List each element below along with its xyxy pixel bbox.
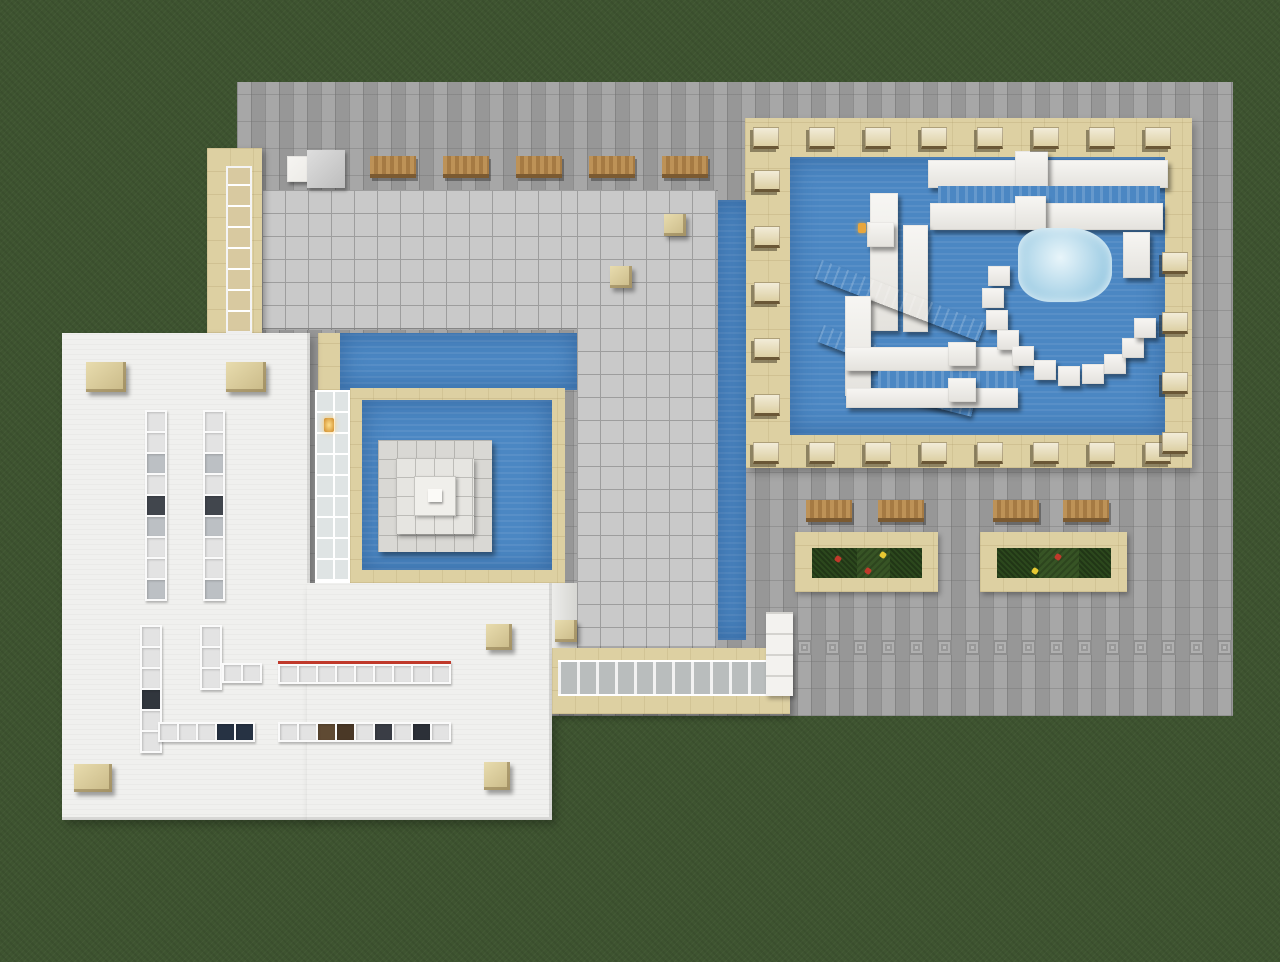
fountain-cap <box>428 489 442 502</box>
lounge-chair <box>1162 372 1188 394</box>
slide-l-bar-upper <box>845 347 1019 371</box>
slide-right-bar <box>1123 232 1150 278</box>
garden-bench-pair <box>993 500 1109 522</box>
skylight-strip <box>145 410 167 601</box>
wooden-bench <box>662 156 708 178</box>
lounge-chair <box>754 338 780 360</box>
skylight-strip <box>203 410 225 601</box>
skylight-pane <box>413 724 430 740</box>
lounge-chair <box>1033 442 1059 464</box>
roof-corner-block <box>484 762 510 790</box>
lounge-chair <box>753 127 779 149</box>
game-viewport[interactable] <box>0 0 1280 962</box>
skylight-pane <box>147 454 165 473</box>
skylight-pane <box>147 412 165 431</box>
lounge-chair <box>1033 127 1059 149</box>
skylight-pane <box>142 648 160 667</box>
hook-block <box>1134 318 1156 338</box>
slab-platform <box>307 150 345 188</box>
hedge <box>812 548 857 578</box>
roof-chimney-block <box>610 266 632 288</box>
slide-box <box>948 342 976 366</box>
chiseled-tile <box>937 640 952 655</box>
deck-loungers-right <box>1162 252 1188 454</box>
slide-box <box>948 378 976 402</box>
skylight-pane <box>205 412 223 431</box>
skylight-pane <box>179 724 196 740</box>
slide-box <box>1015 196 1046 230</box>
lantern-glow <box>324 418 334 432</box>
lounge-chair <box>754 170 780 192</box>
lounge-chair <box>977 127 1003 149</box>
fountain-tier-1 <box>378 440 492 552</box>
skylight-pane <box>318 666 335 682</box>
lounge-chair <box>1162 252 1188 274</box>
north-water-channel <box>340 333 577 390</box>
hook-block <box>1122 338 1144 358</box>
skylight-pane <box>205 433 223 452</box>
skylight-pane <box>375 666 392 682</box>
wooden-bench <box>370 156 416 178</box>
slide-l-vertical <box>845 296 871 396</box>
deck-loungers-left <box>754 170 780 416</box>
slide-box <box>867 222 894 247</box>
skylight-pane <box>356 724 373 740</box>
skylight-strip <box>200 625 222 690</box>
ice-patch <box>1018 228 1112 302</box>
skylight-pane <box>147 496 165 515</box>
skylight-pane <box>160 724 177 740</box>
skylight-pane <box>432 666 449 682</box>
wooden-bench <box>1063 500 1109 522</box>
lounge-chair <box>809 127 835 149</box>
quartz-entrance-strip <box>766 612 793 696</box>
skylight-pane <box>147 559 165 578</box>
white-building-roof-west <box>62 333 310 820</box>
wooden-bench <box>878 500 924 522</box>
roof-chimney-block <box>664 214 686 236</box>
bed-grass <box>1039 548 1079 578</box>
lounge-chair <box>865 127 891 149</box>
skylight-pane <box>205 454 223 473</box>
chiseled-tile <box>1105 640 1120 655</box>
slide-tower-left <box>870 193 898 331</box>
hedge <box>1079 548 1111 578</box>
roof-corner-block <box>226 362 266 392</box>
chiseled-tile <box>853 640 868 655</box>
lounge-chair <box>753 442 779 464</box>
skylight-strip <box>278 722 451 742</box>
hook-block <box>986 310 1008 330</box>
skylight-pane <box>205 538 223 557</box>
wooden-bench <box>589 156 635 178</box>
skylight-pane <box>205 559 223 578</box>
white-building-roof-south <box>307 583 552 820</box>
chiseled-tile <box>797 640 812 655</box>
chiseled-tile <box>909 640 924 655</box>
lounge-chair <box>977 442 1003 464</box>
skylight-pane <box>147 580 165 599</box>
slide-box <box>1015 151 1048 188</box>
courtyard-pool <box>362 400 552 570</box>
lounge-chair <box>1162 432 1188 454</box>
planter-bed <box>980 532 1127 592</box>
chiseled-tile <box>993 640 1008 655</box>
chiseled-tile <box>1021 640 1036 655</box>
chiseled-tile <box>1049 640 1064 655</box>
wooden-bench <box>993 500 1039 522</box>
skylight-pane <box>413 666 430 682</box>
hedge <box>890 548 922 578</box>
skylight-strip <box>158 722 255 742</box>
skylight-pane <box>202 648 220 667</box>
hook-block <box>1034 360 1056 380</box>
chiseled-tile <box>825 640 840 655</box>
skylight-pane <box>147 475 165 494</box>
garden-bench-pair <box>806 500 924 522</box>
atrium-window-band <box>558 660 786 696</box>
fountain-tier-3 <box>414 476 456 516</box>
skylight-pane <box>205 496 223 515</box>
chiseled-tile <box>1161 640 1176 655</box>
skylight-pane <box>375 724 392 740</box>
roof-corner-block <box>486 624 512 650</box>
lounge-chair <box>865 442 891 464</box>
skylight-pane <box>394 666 411 682</box>
hook-block <box>1012 346 1034 366</box>
gold-decoration <box>858 223 866 233</box>
lounge-chair <box>754 282 780 304</box>
west-skylight-strip <box>226 166 252 333</box>
skylight-pane <box>217 724 234 740</box>
skylight-pane <box>337 724 354 740</box>
pool-deck <box>745 118 1192 468</box>
skylight-strip-redline <box>278 661 451 684</box>
skylight-pane <box>299 666 316 682</box>
chiseled-tile <box>881 640 896 655</box>
wooden-bench <box>516 156 562 178</box>
lounge-chair <box>754 394 780 416</box>
skylight-pane <box>147 433 165 452</box>
wall-block <box>555 620 577 642</box>
roof-corner-block <box>74 764 112 792</box>
planter-bed <box>795 532 938 592</box>
hall-roof-vertical <box>577 190 718 648</box>
stair-ramp-upper <box>815 260 986 341</box>
skylight-pane <box>243 665 260 681</box>
east-water-channel <box>718 200 746 640</box>
chiseled-tile <box>1217 640 1232 655</box>
skylight-pane <box>299 724 316 740</box>
deck-loungers-bottom <box>753 442 1171 464</box>
lounge-chair <box>809 442 835 464</box>
wooden-bench <box>443 156 489 178</box>
skylight-pane <box>205 517 223 536</box>
lounge-chair <box>1089 442 1115 464</box>
main-pool <box>790 157 1165 435</box>
hook-block <box>988 266 1010 286</box>
hook-block <box>1058 366 1080 386</box>
skylight-pane <box>147 517 165 536</box>
skylight-strip <box>222 663 262 683</box>
fountain-tier-2 <box>396 458 474 534</box>
skylight-pane <box>142 669 160 688</box>
hook-block <box>1082 364 1104 384</box>
chiseled-tile <box>1189 640 1204 655</box>
skylight-pane <box>356 666 373 682</box>
skylight-pane <box>205 580 223 599</box>
plaza-bench-row <box>370 156 708 178</box>
roof-corner-block <box>86 362 126 392</box>
skylight-pane <box>280 724 297 740</box>
lounge-chair <box>921 442 947 464</box>
skylight-pane <box>318 724 335 740</box>
skylight-pane <box>205 475 223 494</box>
skylight-pane <box>337 666 354 682</box>
skylight-pane <box>394 724 411 740</box>
chiseled-tile <box>965 640 980 655</box>
hook-block <box>982 288 1004 308</box>
skylight-pane <box>142 627 160 646</box>
skylight-pane <box>198 724 215 740</box>
plaza-motif-row <box>797 640 1232 655</box>
deck-loungers-top <box>753 127 1171 149</box>
slide-bar-second <box>930 203 1163 230</box>
lounge-chair <box>1162 312 1188 334</box>
skylight-pane <box>202 669 220 688</box>
lounge-chair <box>1089 127 1115 149</box>
skylight-pane <box>432 724 449 740</box>
skylight-pane <box>224 665 241 681</box>
lounge-chair <box>921 127 947 149</box>
lounge-chair <box>1145 127 1171 149</box>
skylight-pane <box>236 724 253 740</box>
slide-bar-top <box>928 160 1168 188</box>
slide-l-bar-lower <box>846 388 1018 408</box>
wooden-bench <box>806 500 852 522</box>
slide-channel <box>938 186 1160 203</box>
chiseled-tile <box>1133 640 1148 655</box>
skylight-pane <box>142 690 160 709</box>
skylight-pane <box>202 627 220 646</box>
skylight-pane <box>280 666 297 682</box>
chiseled-tile <box>1077 640 1092 655</box>
lounge-chair <box>754 226 780 248</box>
channel-edge <box>318 333 340 390</box>
skylight-pane <box>147 538 165 557</box>
